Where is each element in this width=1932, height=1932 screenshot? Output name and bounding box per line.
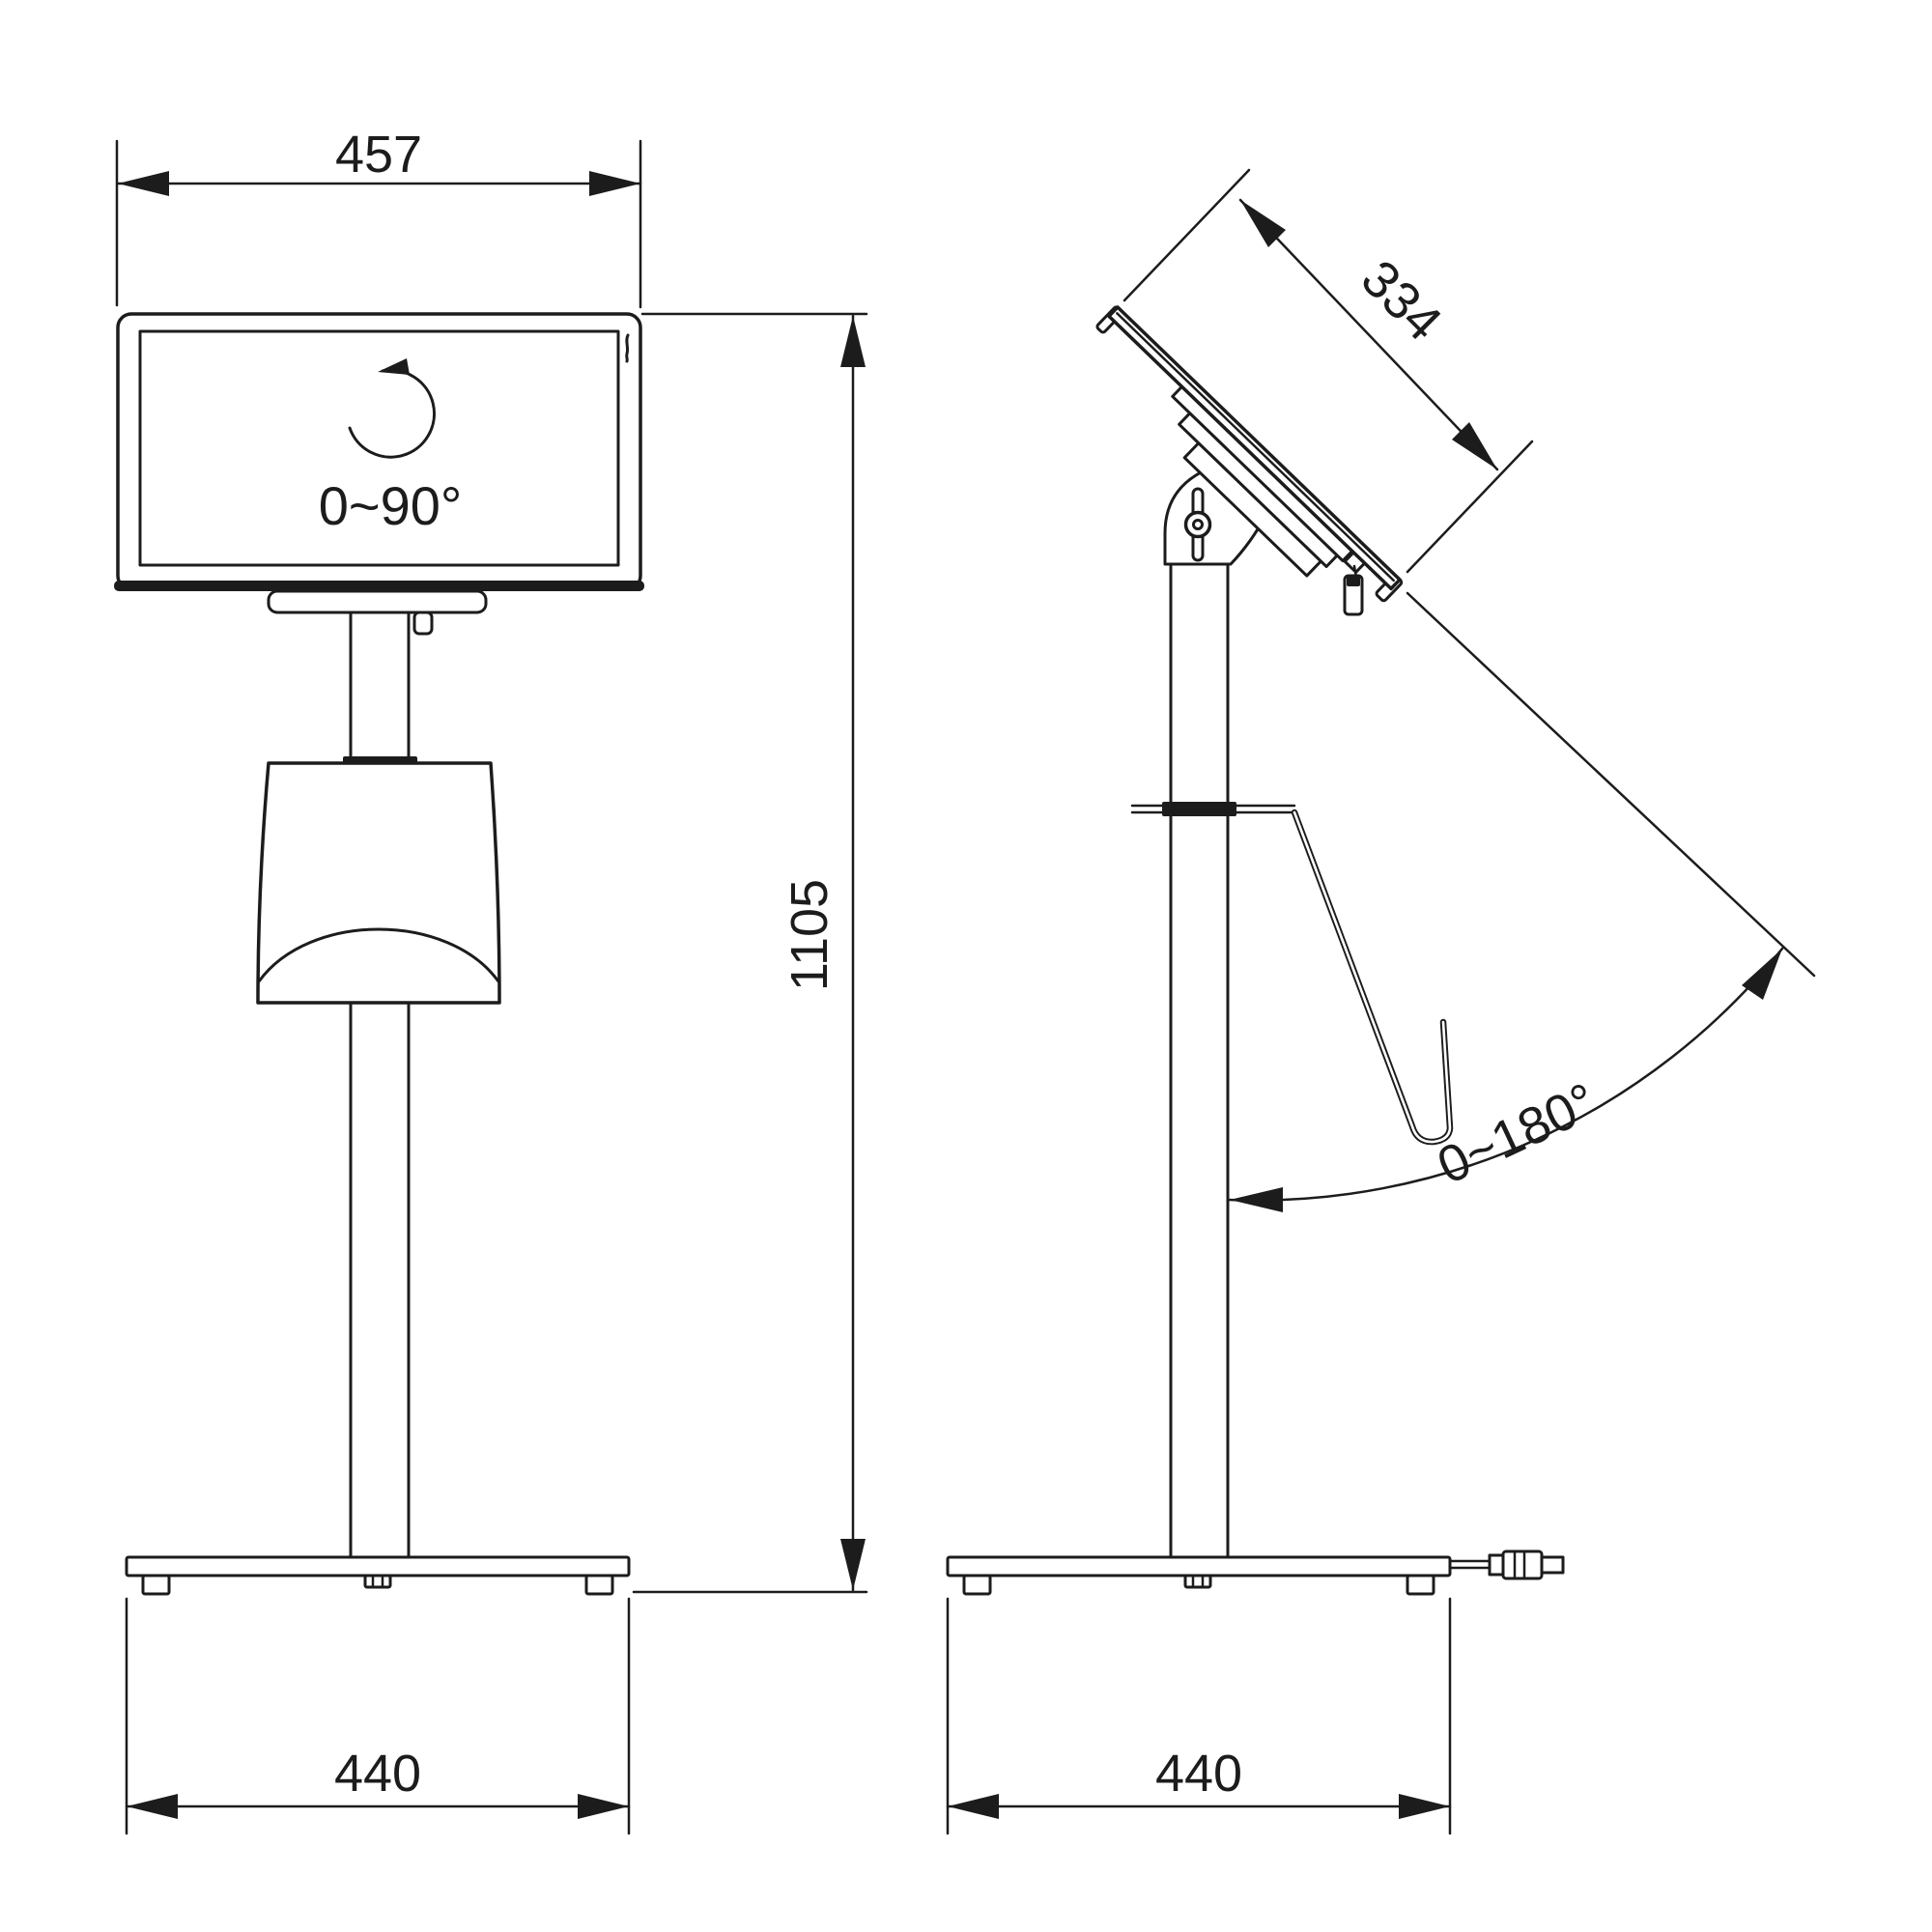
dim-arrowhead-icon [840,1539,866,1590]
side-base-bolt [1185,1576,1210,1587]
dim-arrowhead-icon [1399,1794,1450,1819]
front-base-foot-left [143,1576,169,1594]
front-holder-body [258,763,499,1003]
dimension-tilt-range: 0~180° [1228,593,1814,1212]
dim-arrowhead-icon [127,1794,178,1819]
extension-line [1407,441,1532,572]
extension-line [1124,170,1249,300]
front-base-bolt [365,1576,390,1587]
front-view: 0~90° [114,314,644,1594]
front-mount-tab [414,612,432,634]
side-screen-face-line [1117,313,1393,580]
wing-screw-knob [1186,513,1210,537]
screen-width-value: 457 [335,126,422,184]
side-base-plate [948,1557,1450,1576]
front-base-plate [127,1557,629,1576]
drawing-svg: 0~90° 457 1105 [0,0,1932,1932]
side-base-foot-right [1407,1576,1434,1594]
dimension-base-width-side: 440 [948,1599,1450,1833]
dim-arrowhead-icon [948,1794,999,1819]
hook-clamp-block [1162,802,1236,816]
power-plug-tip [1542,1557,1563,1573]
front-screen-bottom-lip [114,581,644,591]
dimension-screen-width: 457 [117,126,640,307]
holder-hook-inner [1294,812,1450,1142]
dim-arrowhead-icon [840,316,866,367]
camera-mark [627,335,628,361]
screen-depth-value: 334 [1350,249,1453,352]
base-width-front-value: 440 [334,1745,421,1803]
dim-arrowhead-icon [589,171,640,196]
dimension-line [1240,200,1497,469]
side-view [948,306,1563,1594]
dim-arrowhead-icon [1230,1187,1283,1212]
rotation-range-label: 0~90° [319,475,463,536]
front-base-foot-right [586,1576,612,1594]
side-base-foot-left [964,1576,990,1594]
screen-plane-extension-line [1407,593,1814,976]
power-plug-neck [1490,1555,1503,1575]
front-mount-bracket [269,591,486,612]
dimension-overall-height: 1105 [634,314,867,1592]
dim-arrowhead-icon [1742,949,1782,1000]
technical-drawing-page: 0~90° 457 1105 [0,0,1932,1932]
dim-arrowhead-icon [118,171,169,196]
front-screen-outline [118,314,640,589]
power-plug-body [1503,1551,1542,1578]
lock-dongle-cap [1347,577,1360,586]
dim-arrowhead-icon [578,1794,629,1819]
side-screen-slab [1109,307,1400,588]
tilt-range-label: 0~180° [1429,1072,1605,1196]
base-width-side-value: 440 [1155,1745,1242,1803]
overall-height-value: 1105 [781,879,838,991]
dimension-base-width-front: 440 [127,1599,629,1833]
holder-hook-outline [1294,812,1450,1142]
